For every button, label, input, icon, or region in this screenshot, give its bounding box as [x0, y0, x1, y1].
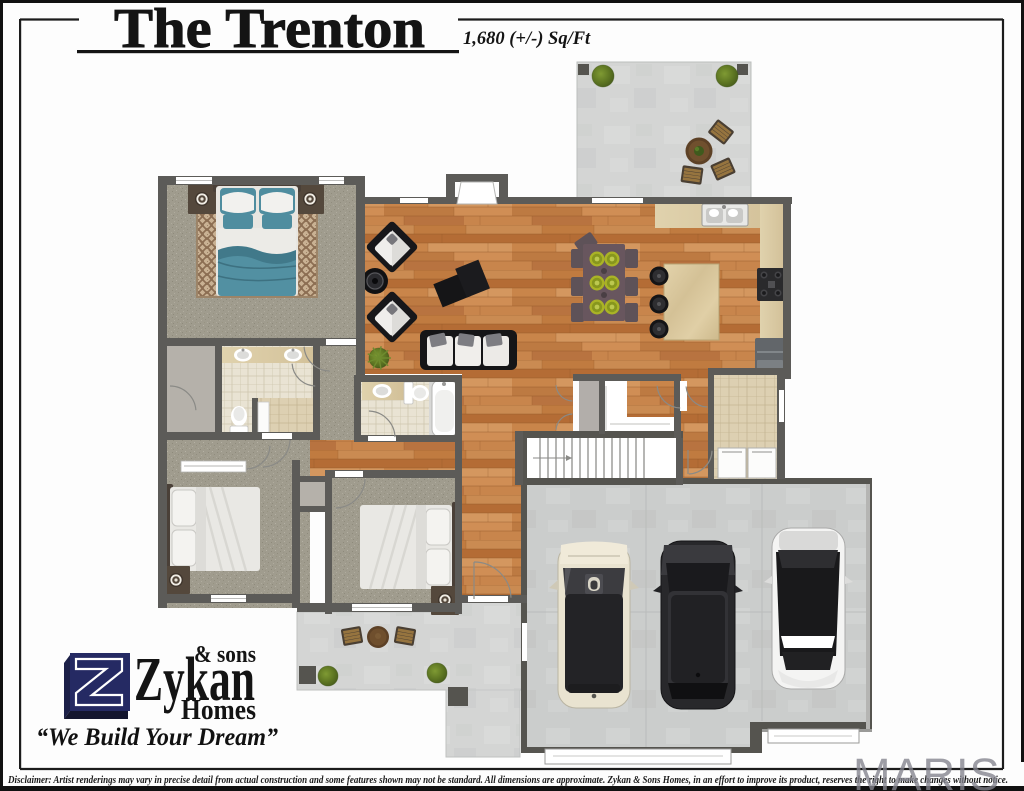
- svg-text:MARIS: MARIS: [853, 749, 1001, 791]
- svg-text:“We Build Your Dream”: “We Build Your Dream”: [36, 724, 278, 751]
- svg-text:& sons: & sons: [194, 642, 256, 668]
- svg-text:Homes: Homes: [181, 695, 256, 726]
- svg-text:1,680 (+/-) Sq/Ft: 1,680 (+/-) Sq/Ft: [463, 29, 591, 49]
